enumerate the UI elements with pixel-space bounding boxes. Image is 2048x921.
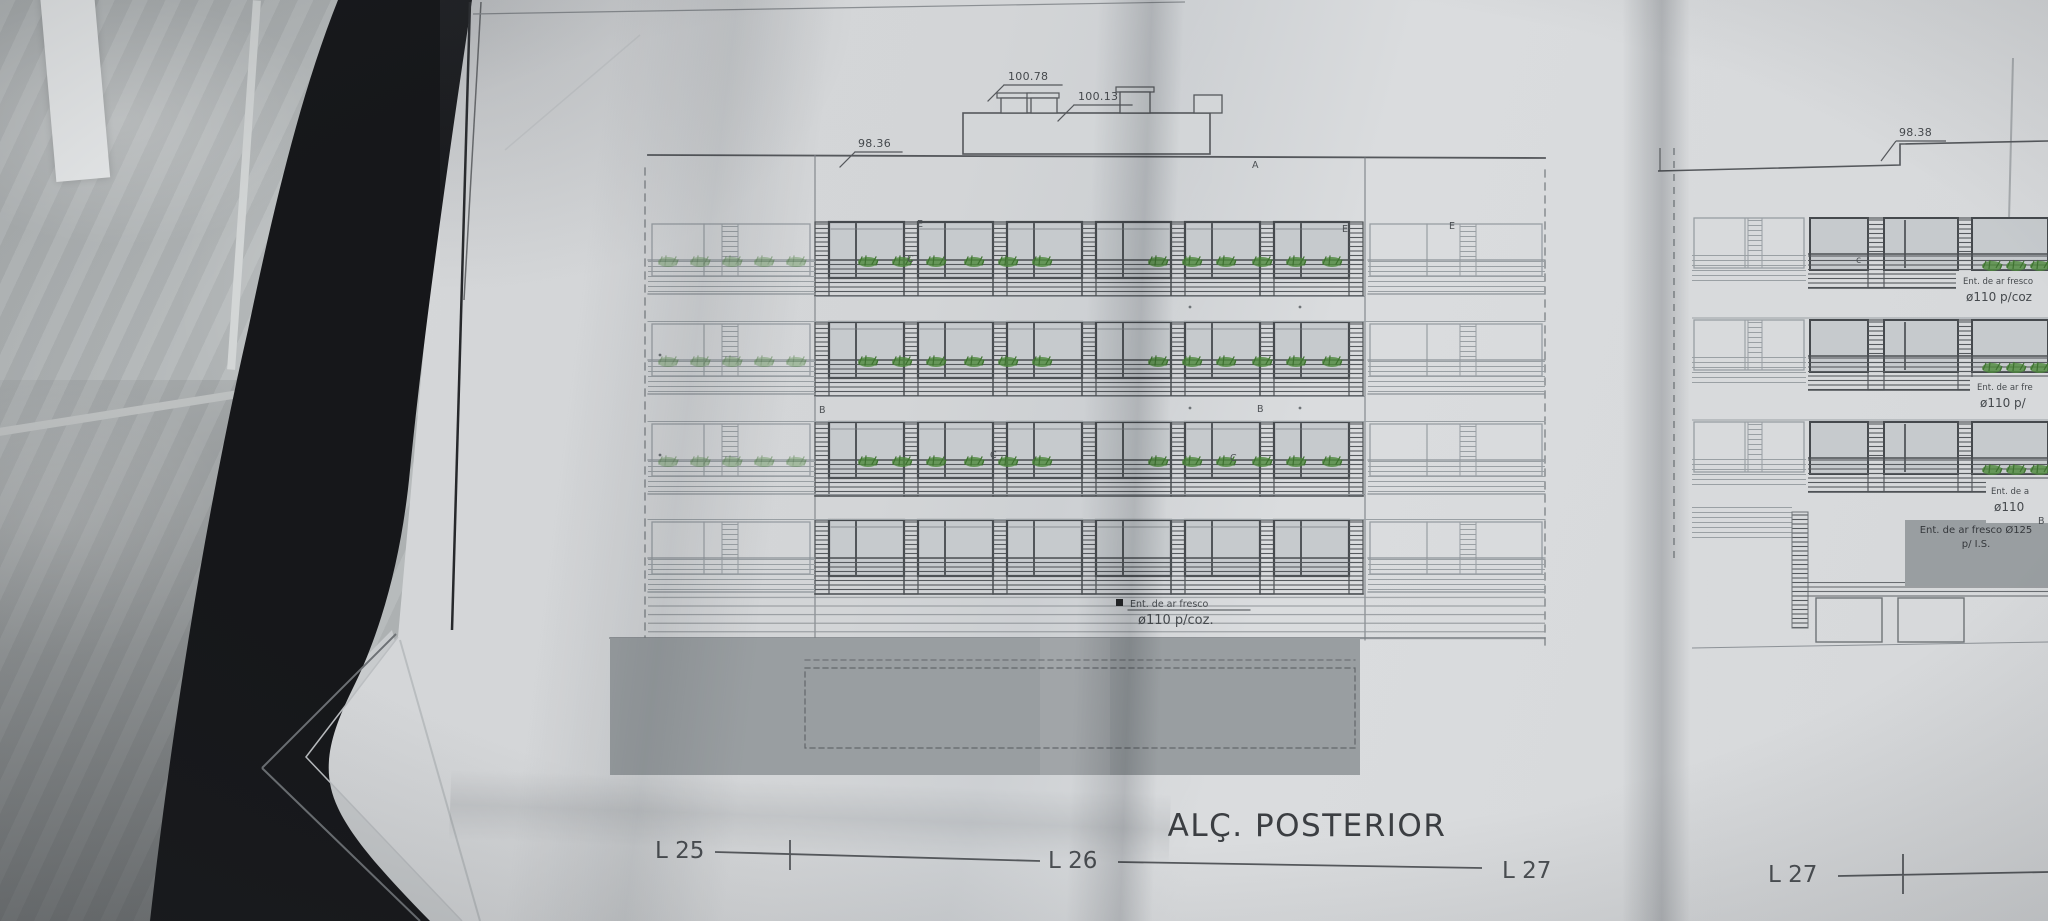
floor-shadow [0, 380, 320, 921]
photo-of-architectural-drawing: 100.78 100.13 98.36 [0, 0, 2048, 921]
